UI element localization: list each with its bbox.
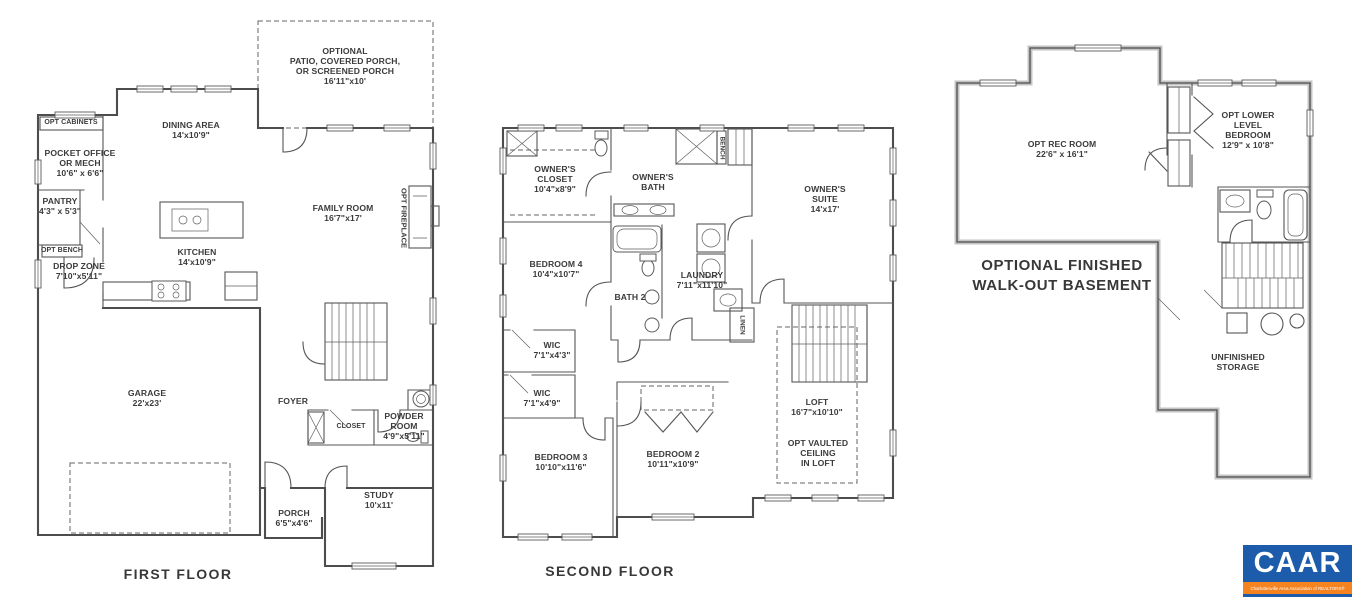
room-label-rec-room: OPT REC ROOM 22'6" x 16'1" <box>1028 139 1097 159</box>
first-floor-walls <box>35 21 439 569</box>
second-floor-title: SECOND FLOOR <box>545 563 675 579</box>
room-label-study: STUDY 10'x11' <box>364 490 394 510</box>
room-label-owners-closet: OWNER'S CLOSET 10'4"x8'9" <box>534 164 576 194</box>
room-label-pocket-office: POCKET OFFICE OR MECH 10'6" x 6'6" <box>44 148 115 178</box>
room-label-wic-a: WIC 7'1"x4'3" <box>533 340 570 360</box>
garage-door-outline <box>70 463 230 533</box>
room-label-garage: GARAGE 22'x23' <box>128 388 166 408</box>
first-floor-title: FIRST FLOOR <box>124 566 233 582</box>
double-vanity <box>614 204 674 216</box>
room-label-opt-cabinets: OPT CABINETS <box>44 119 97 127</box>
room-label-family-room: FAMILY ROOM 16'7"x17' <box>313 203 374 223</box>
powder-sink <box>413 391 429 407</box>
caar-logo: CAAR Charlottesville Area Association of… <box>1243 545 1352 597</box>
utility-box <box>1227 313 1247 333</box>
second-floor-stairs <box>792 305 867 382</box>
basement-tub <box>1284 190 1307 240</box>
owners-bath-toilet <box>595 140 607 156</box>
washer <box>697 224 725 252</box>
water-heater <box>1261 313 1283 335</box>
island-sink <box>172 209 208 231</box>
caar-logo-tagline-bar: Charlottesville Area Association of REAL… <box>1243 582 1352 594</box>
room-label-bedroom4: BEDROOM 4 10'4"x10'7" <box>530 259 583 279</box>
room-label-kitchen: KITCHEN 14'x10'9" <box>178 247 217 267</box>
utility-tank <box>1290 314 1304 328</box>
basement-title: OPTIONAL FINISHED WALK-OUT BASEMENT <box>972 256 1151 295</box>
bedroom-double-door <box>1194 97 1213 148</box>
room-label-wic-b: WIC 7'1"x4'9" <box>523 388 560 408</box>
caar-logo-tagline: Charlottesville Area Association of REAL… <box>1250 586 1344 591</box>
caar-logo-wordmark: CAAR <box>1243 545 1352 582</box>
bath2-sink-1 <box>645 290 659 304</box>
bedroom2-closet-outline <box>641 386 713 410</box>
room-label-powder-room: POWDER ROOM 4'9"x5'11" <box>383 411 424 441</box>
stove <box>152 281 186 301</box>
first-floor-stairs <box>325 303 387 380</box>
room-label-owners-bath: OWNER'S BATH <box>632 172 673 192</box>
basement-sink <box>1220 190 1250 212</box>
fireplace <box>409 186 431 248</box>
room-label-foyer: FOYER <box>278 396 308 406</box>
room-label-unfinished-storage: UNFINISHED STORAGE <box>1211 352 1265 372</box>
room-label-closet: CLOSET <box>337 423 366 431</box>
room-label-opt-vaulted: OPT VAULTED CEILING IN LOFT <box>788 438 848 468</box>
room-label-owners-suite: OWNER'S SUITE 14'x17' <box>804 184 845 214</box>
room-label-opt-fireplace: OPT FIREPLACE <box>400 188 409 248</box>
room-label-bedroom3: BEDROOM 3 10'10"x11'6" <box>535 452 588 472</box>
room-label-loft: LOFT 16'7"x10'10" <box>791 397 843 417</box>
room-label-porch: PORCH 6'5"x4'6" <box>275 508 312 528</box>
floor-plan-sheet: OPTIONAL PATIO, COVERED PORCH, OR SCREEN… <box>0 0 1355 600</box>
bath2-toilet <box>642 260 654 276</box>
room-label-linen: LINEN <box>739 315 746 335</box>
room-label-dining: DINING AREA 14'x10'9" <box>162 120 220 140</box>
basement-toilet <box>1257 201 1271 219</box>
room-label-bedroom2: BEDROOM 2 10'11"x10'9" <box>647 449 700 469</box>
floor-plan-drawing <box>0 0 1355 600</box>
room-label-optional-patio: OPTIONAL PATIO, COVERED PORCH, OR SCREEN… <box>290 46 400 87</box>
room-label-bath2: BATH 2 <box>615 292 646 302</box>
room-label-laundry: LAUNDRY 7'11"x11'10" <box>677 270 728 290</box>
bath-cabinet <box>728 129 752 165</box>
room-label-drop-zone: DROP ZONE 7'10"x5'11" <box>53 261 105 281</box>
room-label-pantry: PANTRY 4'3" x 5'3" <box>39 196 81 216</box>
room-label-lower-bedroom: OPT LOWER LEVEL BEDROOM 12'9" x 10'8" <box>1222 110 1275 151</box>
kitchen-island <box>160 202 243 238</box>
bath2-sink-2 <box>645 318 659 332</box>
room-label-opt-bench: OPT BENCH <box>41 247 83 255</box>
room-label-bench: BENCH <box>719 136 726 159</box>
